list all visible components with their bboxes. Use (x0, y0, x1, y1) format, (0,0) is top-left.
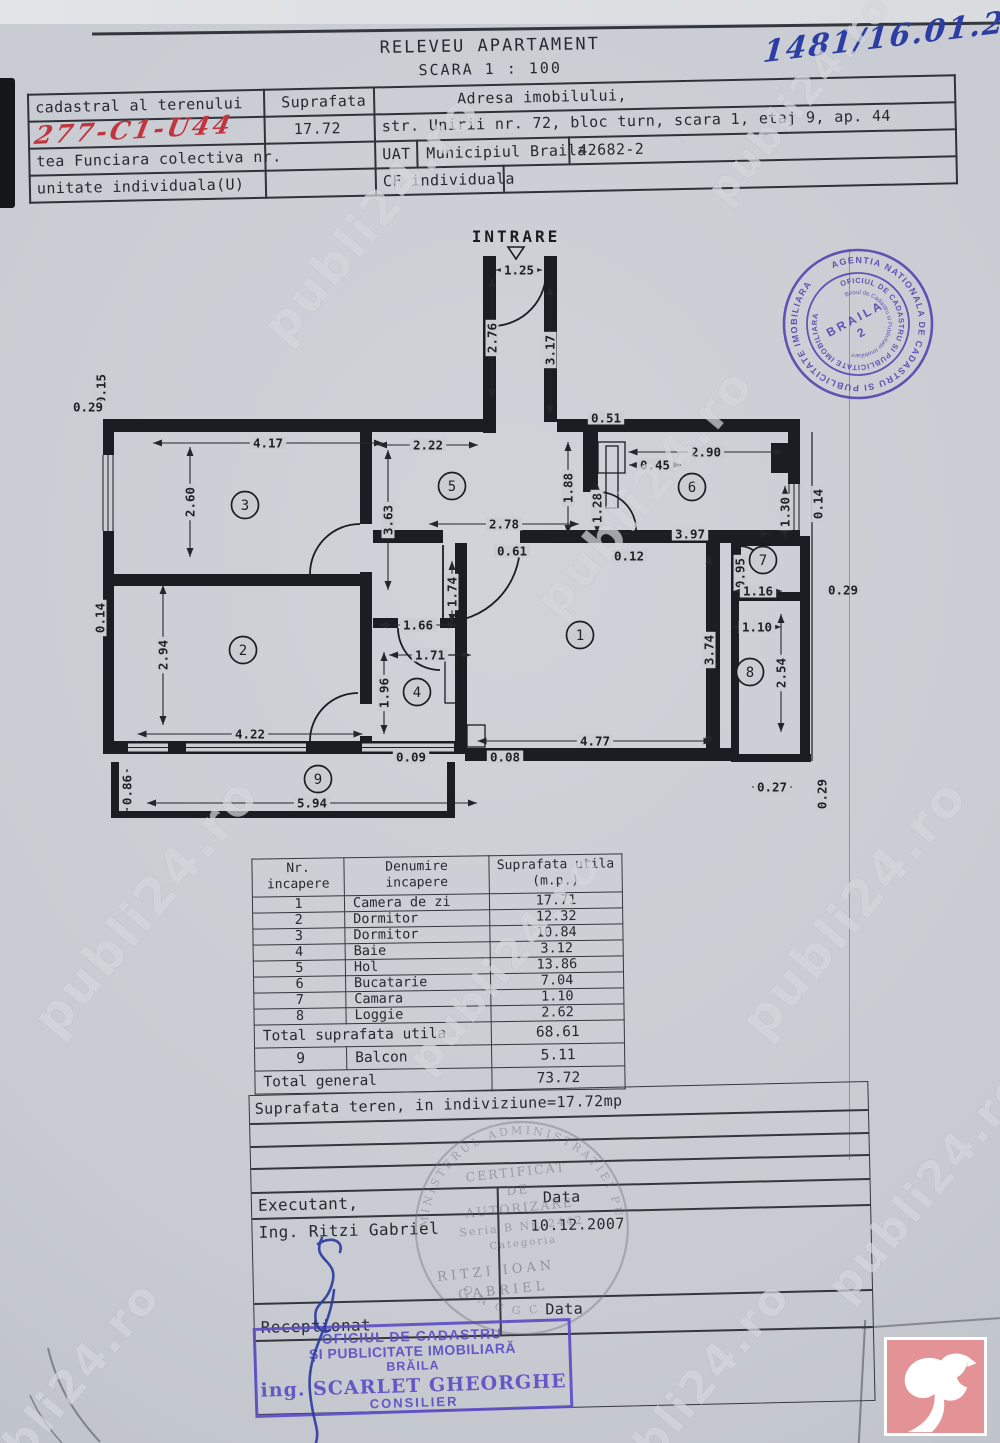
dimension-value: 2.22 (413, 438, 443, 453)
room-number: 1 (567, 622, 594, 649)
dimension: 0.29 (825, 583, 861, 598)
dimension-value: 0.27 (757, 780, 787, 795)
dimension: 0.14 (93, 600, 108, 636)
dimension: 0.51 (588, 411, 624, 426)
room-nr-cell: 5 (253, 959, 345, 976)
dimension: 1.30 (778, 486, 793, 538)
svg-text:OFICIUL DE CADASTRU SI PUBLICI: OFICIUL DE CADASTRU SI PUBLICITATE IMOBI… (793, 259, 923, 389)
dimension: 2.78 (429, 517, 579, 532)
dimension: 1.71 (389, 648, 471, 663)
teren-note: Suprafata teren, in indiviziune=17.72mp (255, 1092, 623, 1118)
svg-text:4: 4 (413, 685, 421, 701)
dimension-value: 1.88 (561, 473, 576, 503)
dimension: 1.66 (379, 618, 457, 633)
dimension-value: 3.17 (543, 335, 558, 365)
dimension-value: 0.14 (93, 603, 108, 633)
dimension-value: 1.16 (743, 584, 773, 599)
dimension-value: 0.29 (73, 400, 103, 415)
dimension-value: 0.08 (490, 750, 520, 765)
dimension: 5.94 (147, 796, 477, 811)
dimension: 1.74 (445, 561, 460, 623)
room-number: 6 (679, 474, 706, 501)
dimension-value: 4.77 (580, 734, 610, 749)
dimension: 0.86 (120, 769, 135, 811)
dimension: 3.17 (543, 286, 558, 414)
dimension-value: 0.45 (640, 458, 670, 473)
dimension-value: 0.29 (815, 779, 830, 809)
dimension: 1.16 (734, 584, 782, 599)
scan-top-edge (0, 0, 1000, 24)
dimension-value: 0.14 (811, 489, 826, 519)
scan-left-shadow (0, 78, 15, 208)
dimension: 0.61 (494, 544, 530, 559)
dimension-value: 1.25 (504, 263, 534, 278)
dimension-value: 1.28 (590, 493, 605, 523)
dimension-labels: 1.252.763.170.150.294.172.222.603.630.51… (70, 263, 861, 813)
room-nr-cell: 4 (253, 943, 345, 960)
dimension: 2.90 (629, 445, 784, 460)
room-number: 9 (305, 766, 332, 793)
floor-plan-windows (100, 455, 802, 752)
oficiu-cadastru-stamp: OFICIUL DE CADASTRU ȘI PUBLICITATE IMOBI… (253, 1318, 574, 1418)
room-area-cell: 2.62 (491, 1003, 624, 1021)
svg-text:AGENTIA NATIONALA DE CADASTRU: AGENTIA NATIONALA DE CADASTRU SI PUBLICI… (765, 231, 952, 418)
dimension-value: 1.66 (403, 618, 433, 633)
dimension: 2.60 (183, 447, 198, 557)
room-area-cell: 7.04 (490, 971, 623, 989)
page-curl-lines (30, 1348, 100, 1443)
paper-fold-line (849, 250, 850, 1160)
cf-individuala-label: CF individuala (383, 170, 515, 191)
dimension-value: 0.95 (733, 558, 748, 588)
unitate-individuala-label: unitate individuala(U) (37, 175, 245, 197)
room-nr-cell: 6 (254, 975, 346, 992)
dove-icon (887, 1340, 984, 1433)
svg-text:BRAILA: BRAILA (824, 298, 886, 340)
header-table: cadastral al terenului 277-C1-U44 tea Fu… (27, 74, 958, 203)
watermark-text: publi24.ro (525, 356, 766, 628)
dimension-value: 2.54 (774, 658, 789, 688)
dimension: 2.54 (774, 614, 789, 732)
dimension: 3.74 (702, 555, 717, 745)
uat-label: UAT (382, 145, 411, 164)
dimension: 4.17 (153, 436, 383, 451)
dimension: 1.96 (377, 652, 392, 734)
dimension-value: 0.86 (120, 775, 135, 805)
dimension: 4.77 (478, 734, 713, 749)
dimension: 0.12 (611, 549, 647, 564)
dimension-value: 3.74 (702, 635, 717, 665)
room-nr-cell: 3 (253, 927, 345, 944)
svg-text:3: 3 (241, 498, 249, 514)
dimension-value: 5.94 (297, 796, 327, 811)
scanned-document-page: RELEVEU APARTAMENT SCARA 1 : 100 1481/16… (0, 0, 1000, 1443)
dimension-value: 3.63 (381, 505, 396, 535)
dimension-value: 0.15 (94, 374, 109, 404)
executant-name: Ing. Ritzi Gabriel (258, 1219, 439, 1242)
publi24-logo-background (887, 1340, 984, 1433)
balcon-label: Balcon (347, 1044, 492, 1069)
room-number: 5 (439, 473, 466, 500)
svg-text:2: 2 (239, 643, 247, 659)
round-cadastru-stamp: AGENTIA NATIONALA DE CADASTRU SI PUBLICI… (739, 205, 977, 443)
room-number: 2 (230, 637, 257, 664)
suprafata-value: 17.72 (294, 119, 342, 138)
svg-text:6: 6 (688, 480, 696, 496)
dimension: 1.10 (733, 620, 781, 635)
svg-text:2: 2 (855, 323, 870, 340)
dimension-value: 2.76 (485, 323, 500, 353)
dimension-value: 1.30 (778, 497, 793, 527)
dimension-value: 2.90 (691, 445, 721, 460)
suprafata-label: Suprafata (281, 92, 366, 112)
room-nr-cell: 7 (254, 991, 346, 1008)
col-header-denumire: Denumire incapere (344, 856, 490, 896)
col-header-nr: Nr. incapere (252, 858, 345, 897)
dimension: 3.63 (381, 450, 396, 590)
room-area-cell: 12.32 (490, 907, 623, 925)
publi24-logo (884, 1337, 987, 1436)
dimension-value: 1.10 (742, 620, 772, 635)
room-nr-cell: 1 (252, 895, 344, 912)
dimension: 0.45 (629, 458, 681, 473)
floor-plan-walls (103, 256, 811, 818)
dimension-value: 0.09 (396, 750, 426, 765)
dimension: 4.22 (138, 727, 363, 742)
data-label: Data (543, 1188, 581, 1207)
dimension: 0.27 (752, 780, 792, 795)
balcon-value: 5.11 (491, 1042, 624, 1067)
data-label-2: Data (545, 1300, 583, 1319)
room-area-cell: 17.71 (489, 891, 622, 909)
room-nr-cell: 8 (254, 1007, 346, 1024)
room-area-cell: 10.84 (490, 923, 623, 941)
watermark-text: publi24.ro (21, 765, 271, 1047)
room-number: 3 (232, 492, 259, 519)
uat-code: 42682-2 (578, 140, 644, 159)
svg-text:5: 5 (448, 479, 456, 495)
dimension: 3.97 (610, 527, 770, 542)
dimension: 0.29 (815, 776, 830, 812)
dimension-value: 1.71 (415, 648, 445, 663)
room-number: 4 (404, 679, 431, 706)
executant-label: Executant, (258, 1194, 359, 1215)
svg-text:9: 9 (314, 772, 322, 788)
dimension-value: 4.17 (253, 436, 283, 451)
svg-text:Biroul de Cadastru si Publicit: Biroul de Cadastru si Publicitate Imobil… (822, 278, 904, 365)
dimension-value: 3.97 (675, 527, 705, 542)
floor-plan-doors (310, 268, 765, 741)
entrance-label: INTRARE (472, 227, 560, 246)
col-header-suprafata: Suprafata utila (m.p.) (489, 854, 623, 893)
carte-funciara-label: tea Funciara colectiva nr. (36, 147, 282, 170)
dimension: 0.09 (393, 750, 429, 765)
floor-plan-fixtures (445, 432, 812, 761)
title-line1: RELEVEU APARTAMENT (340, 33, 640, 58)
room-numbers: 123456789 (230, 473, 777, 793)
svg-text:8: 8 (746, 665, 754, 681)
svg-text:7: 7 (759, 553, 767, 569)
dimension: 0.95 (733, 553, 748, 593)
title-line2: SCARA 1 : 100 (340, 57, 640, 80)
areas-table: Nr. incapere Denumire incapere Suprafata… (251, 853, 625, 1094)
dimension-value: 0.61 (497, 544, 527, 559)
dimension-value: 1.74 (445, 577, 460, 607)
room-area-cell: 13.86 (490, 955, 623, 973)
document-title: RELEVEU APARTAMENT SCARA 1 : 100 (340, 33, 641, 80)
dimension: 0.08 (487, 750, 523, 765)
dimension-value: 0.51 (591, 411, 621, 426)
dimension: 2.22 (378, 438, 478, 453)
dimension: 0.14 (811, 486, 826, 522)
room-nr-cell: 2 (253, 911, 345, 928)
svg-text:1: 1 (576, 628, 584, 644)
dimension: 1.88 (561, 442, 576, 534)
dimension-value: 2.94 (156, 640, 171, 670)
room-area-cell: 1.10 (491, 987, 624, 1005)
room-number: 7 (750, 547, 777, 574)
room-number: 8 (737, 659, 764, 686)
dimension: 0.29 (70, 400, 106, 415)
dimension-value: 1.96 (377, 678, 392, 708)
entrance-arrow-icon (508, 247, 524, 259)
paper-corner-line-h (861, 1317, 1000, 1329)
room-area-cell: 3.12 (490, 939, 623, 957)
data-value: 10.12.2007 (530, 1215, 625, 1235)
dimension: 1.28 (590, 483, 605, 533)
total-utila-value: 68.61 (491, 1019, 624, 1044)
watermark-text: publi24.ro (0, 1271, 171, 1443)
uat-value: Municipiul Braila (426, 141, 587, 162)
dimension: 1.25 (496, 263, 542, 278)
dimension-value: 0.29 (828, 583, 858, 598)
balcon-nr: 9 (255, 1046, 347, 1070)
total-utila-label: Total suprafata utila (254, 1021, 491, 1047)
dimension: 0.15 (94, 371, 109, 407)
dimension-value: 0.12 (614, 549, 644, 564)
watermark-text: publi24.ro (729, 767, 979, 1049)
dimension-value: 2.60 (183, 487, 198, 517)
dimension-value: 4.22 (235, 727, 265, 742)
dimension-value: 2.78 (489, 517, 519, 532)
dimension: 2.94 (156, 585, 171, 725)
dimension: 2.76 (485, 278, 500, 398)
adresa-label: Adresa imobilului, (457, 86, 627, 108)
